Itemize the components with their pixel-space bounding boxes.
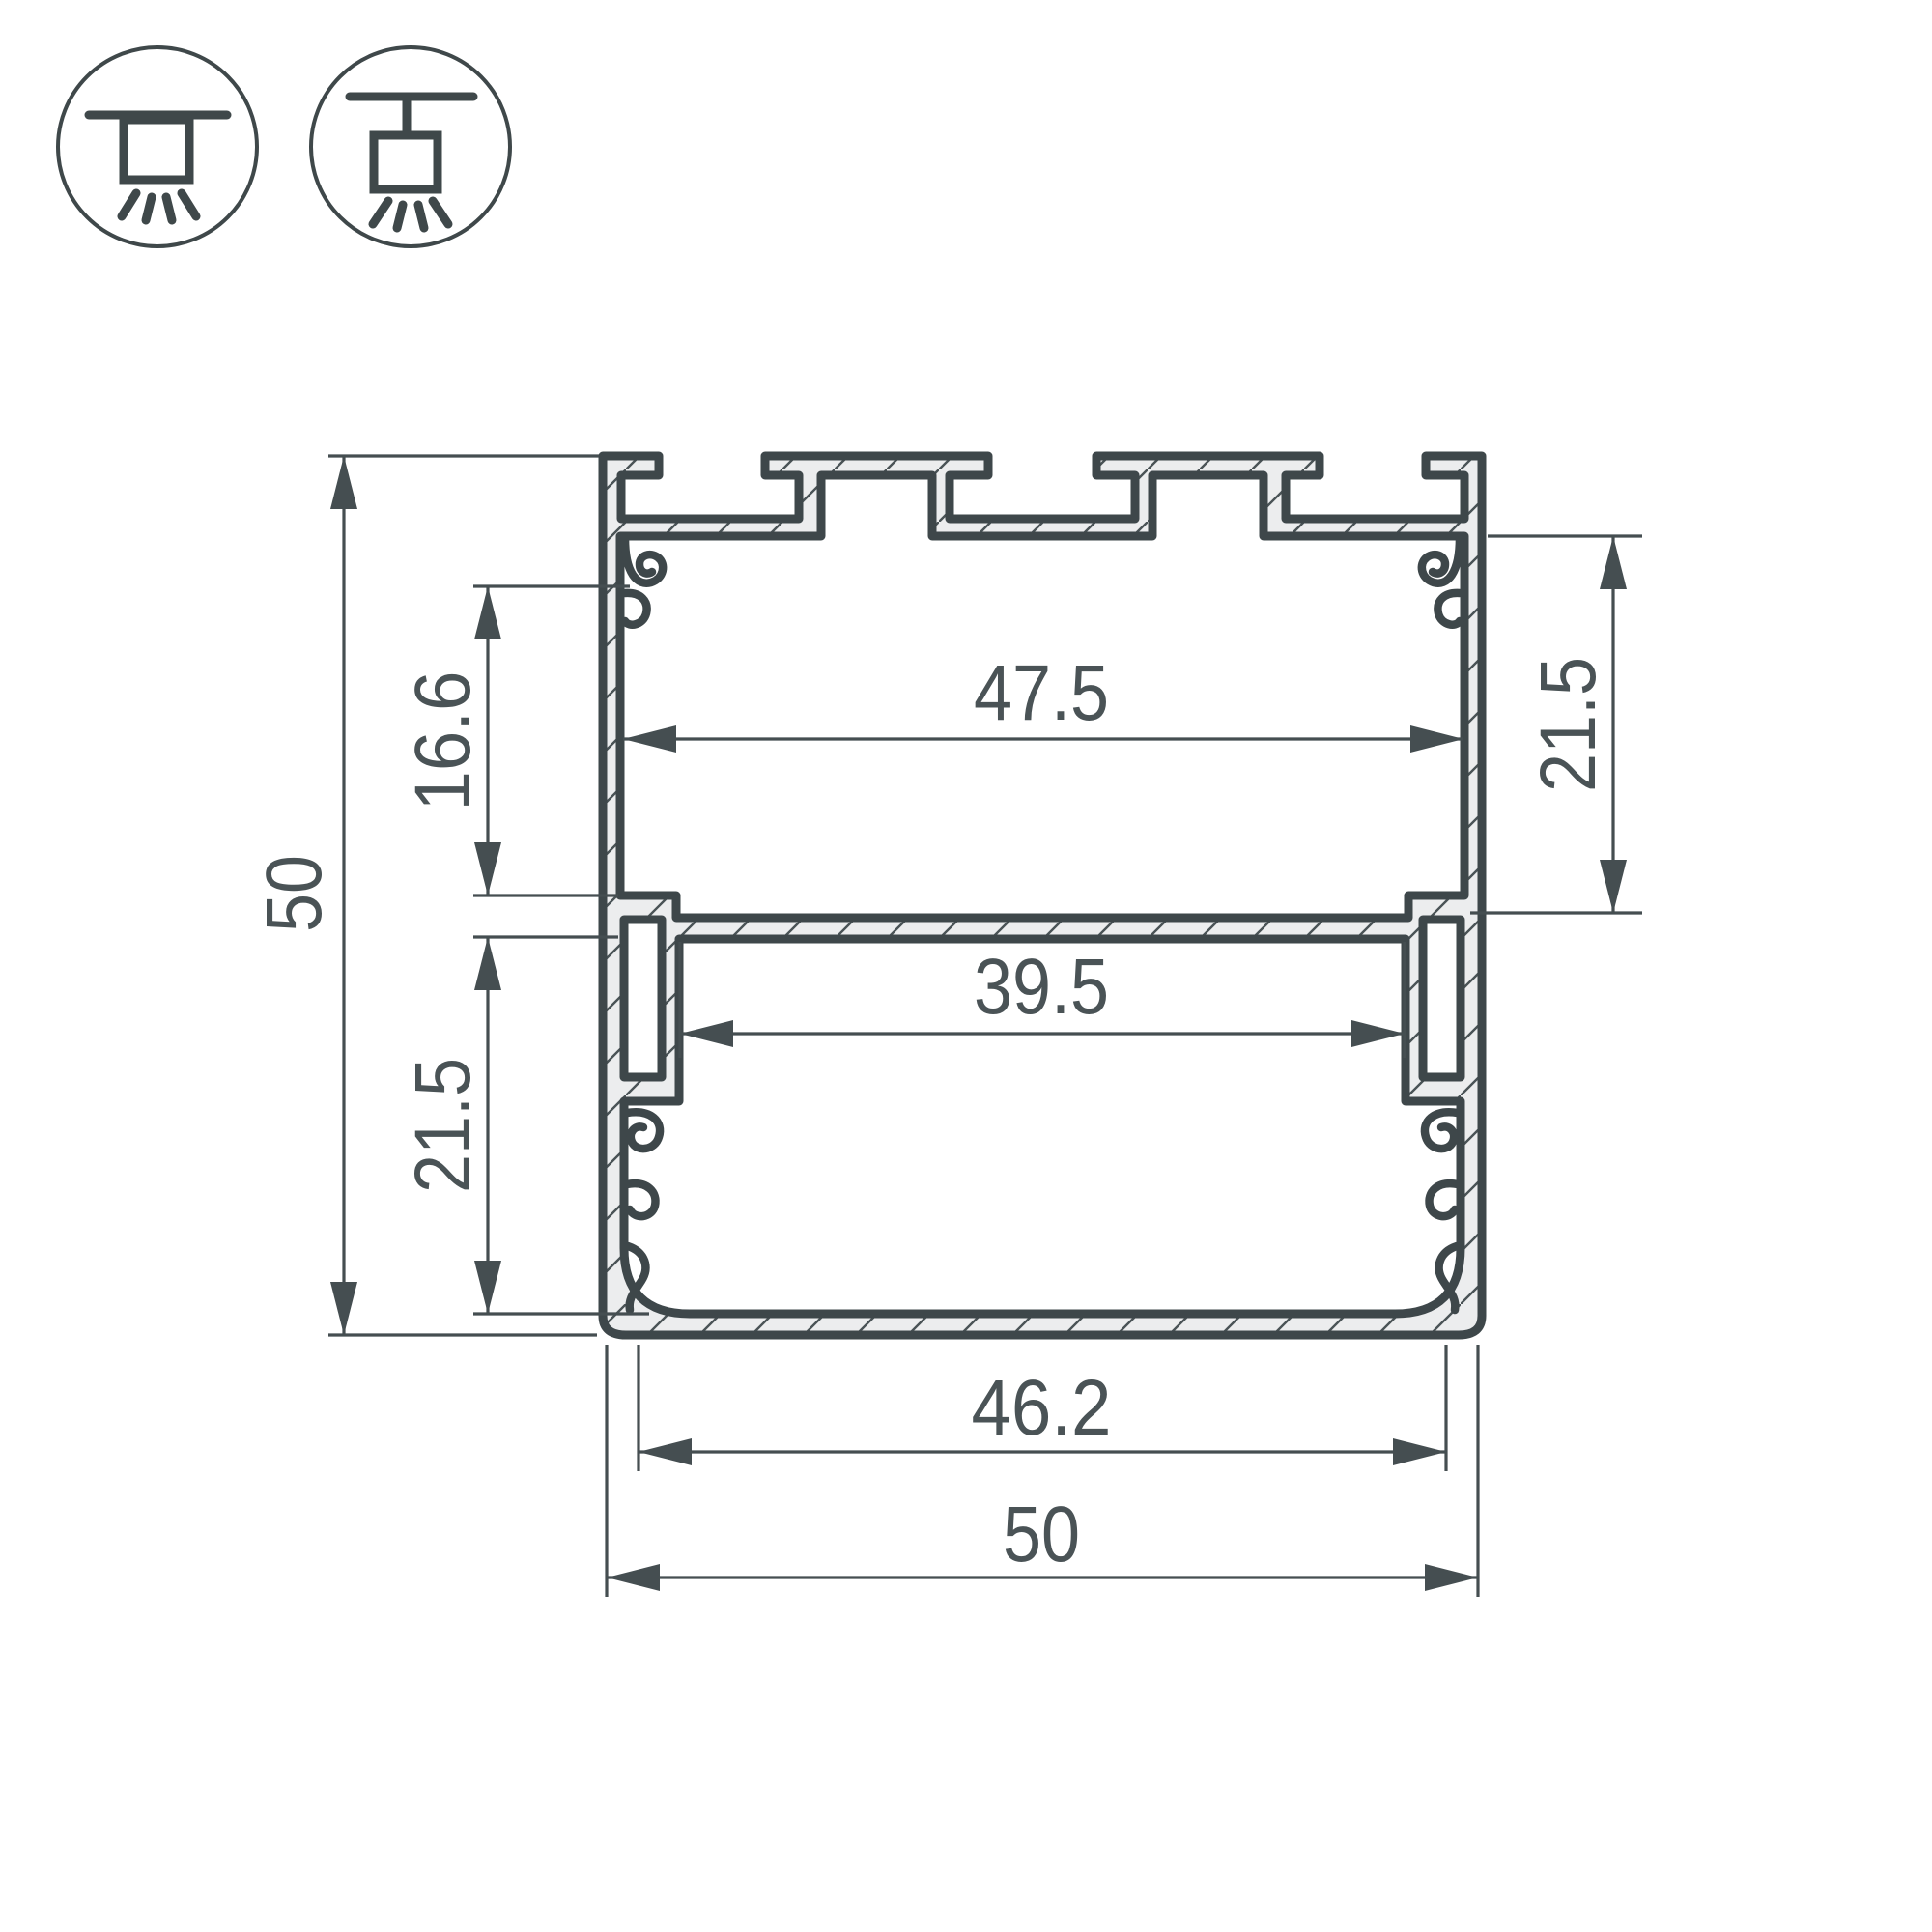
arrowhead [680, 1020, 733, 1047]
arrowhead [1425, 1564, 1478, 1591]
luminaire-box [374, 135, 438, 189]
mount-type-icons [58, 47, 510, 246]
light-ray [146, 197, 152, 220]
arrowhead [607, 1564, 660, 1591]
arrowhead [1600, 860, 1627, 913]
light-ray [166, 197, 172, 220]
clip-bump [625, 593, 647, 625]
label-inner-width-middle: 39.5 [974, 943, 1109, 1031]
arrowhead [474, 937, 501, 990]
luminaire-box [124, 120, 189, 180]
light-ray [182, 193, 196, 216]
arrowhead [1410, 725, 1463, 753]
profile-outline [603, 456, 1482, 1335]
profile-drawing-canvas: 50 16.6 21.5 21.5 47.5 39.5 46.2 50 [0, 0, 1932, 1932]
arrowhead [639, 1438, 692, 1465]
light-ray [397, 205, 403, 228]
arrowhead [474, 842, 501, 895]
label-right-cavity-depth: 21.5 [1524, 657, 1612, 792]
arrowhead [474, 1261, 501, 1314]
section-hatching [603, 456, 1482, 1335]
light-ray [373, 201, 388, 224]
label-inner-width-top: 47.5 [974, 649, 1109, 737]
clip-curl [625, 538, 663, 583]
clip-bump [1437, 593, 1460, 625]
arrowhead [1600, 536, 1627, 589]
light-ray [418, 205, 424, 228]
technical-drawing-page: 50 16.6 21.5 21.5 47.5 39.5 46.2 50 [0, 0, 1932, 1932]
clip-bump [1430, 1183, 1458, 1216]
light-ray [122, 193, 136, 216]
arrowhead [474, 586, 501, 639]
arrowhead [330, 1282, 357, 1335]
arrowhead [1393, 1438, 1446, 1465]
arrowhead [623, 725, 676, 753]
suspended-mount-icon [311, 47, 510, 246]
surface-mount-icon [58, 47, 257, 246]
icon-circle [311, 47, 510, 246]
profile-cross-section [603, 456, 1482, 1335]
profile-body [603, 456, 1482, 1335]
clip-curl [1422, 538, 1460, 583]
clip-bump [627, 1183, 655, 1216]
label-lower-cavity-depth: 21.5 [399, 1058, 487, 1193]
arrowhead [330, 456, 357, 509]
icon-circle [58, 47, 257, 246]
light-ray [433, 201, 448, 224]
label-inner-width-bottom: 46.2 [972, 1364, 1112, 1452]
label-overall-width: 50 [1003, 1491, 1080, 1578]
clip-curl [1425, 1112, 1458, 1149]
label-top-cavity-depth: 16.6 [399, 671, 487, 811]
dimension-labels: 50 16.6 21.5 21.5 47.5 39.5 46.2 50 [250, 649, 1612, 1578]
label-overall-height: 50 [250, 855, 338, 932]
arrowhead [1351, 1020, 1405, 1047]
clip-curl [627, 1112, 660, 1149]
